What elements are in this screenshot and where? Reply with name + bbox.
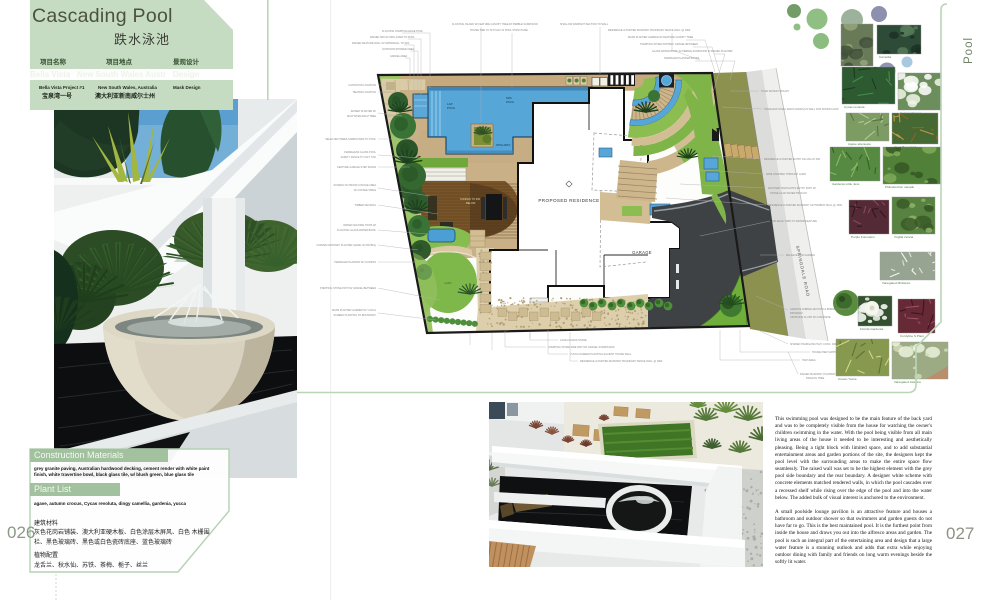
svg-text:RAISED SPA W/ SPILLOVER TO POO: RAISED SPA W/ SPILLOVER TO POOL	[370, 36, 415, 39]
svg-text:HIGH AREA: HIGH AREA	[802, 359, 816, 362]
svg-text:SHALLOW RAMPANT SECTION TO WAL: SHALLOW RAMPANT SECTION TO WALL	[560, 23, 609, 26]
svg-text:RESIDENCE & PAINTED MASONRY BO: RESIDENCE & PAINTED MASONRY BOUNDARY FEN…	[608, 29, 691, 32]
svg-text:STONE CLAD WATER TROUGH: STONE CLAD WATER TROUGH	[770, 192, 807, 195]
svg-text:TERRACED PLANTER BOXES: TERRACED PLANTER BOXES	[664, 57, 700, 60]
svg-text:POOL: POOL	[506, 100, 515, 104]
svg-text:RAISED FEATURE WALL W/ WATERFA: RAISED FEATURE WALL W/ WATERFALL TO SPA	[352, 42, 410, 45]
svg-text:SAFETY FENCE TO SUIT. STD: SAFETY FENCE TO SUIT. STD	[341, 156, 377, 159]
svg-text:FILTRATION LOCATION: FILTRATION LOCATION	[348, 84, 376, 87]
svg-text:OUTDOOR SHOWER AREA: OUTDOOR SHOWER AREA	[382, 48, 414, 51]
svg-text:FEATURE GAMALE STEP PALMS: FEATURE GAMALE STEP PALMS	[337, 166, 376, 169]
svg-text:STEPPING STONE PATH W/ GRAVEL: STEPPING STONE PATH W/ GRAVEL BETWEEN	[320, 287, 376, 290]
svg-text:Purple Formation: Purple Formation	[851, 235, 875, 239]
svg-text:FLOATING ISLAND W/ FEATURE CAN: FLOATING ISLAND W/ FEATURE CANOPY TREE W…	[452, 23, 538, 26]
svg-text:EXPOSED HIGHLIGHTS ENTRY PATH: EXPOSED HIGHLIGHTS ENTRY PATH W/	[768, 187, 816, 190]
svg-text:SELECTED TREES SURROUNDS TO PO: SELECTED TREES SURROUNDS TO POOL	[325, 138, 376, 141]
svg-text:LAWN: LAWN	[444, 281, 452, 285]
svg-text:Variegated Jasmine: Variegated Jasmine	[894, 380, 921, 384]
svg-text:MASS PLANTED GARDEN W/ FEATURE: MASS PLANTED GARDEN W/ FEATURE CANOPY TR…	[628, 36, 693, 39]
svg-text:BALANCE FOR GARDEN: BALANCE FOR GARDEN	[786, 254, 815, 257]
svg-text:Cycas revoluta: Cycas revoluta	[844, 105, 865, 109]
svg-text:FLOATING STEPPING EDGE POOL: FLOATING STEPPING EDGE POOL	[382, 30, 424, 33]
svg-text:GATE ACCESS STORE: GATE ACCESS STORE	[560, 339, 587, 342]
svg-text:CURVED MASONRY PLANTER (LEVEL: CURVED MASONRY PLANTER (LEVEL W/ PAVING)	[316, 244, 376, 247]
svg-text:MULTISTEM PALM TREE: MULTISTEM PALM TREE	[347, 115, 376, 118]
svg-text:YUCCA SCREEN PLANTING AGAINST: YUCCA SCREEN PLANTING AGAINST HOUSE WALL	[570, 353, 632, 356]
svg-text:DRAGON TREE: DRAGON TREE	[806, 377, 825, 380]
svg-text:RESIDENCE & PAINTED ENTRY FILL: RESIDENCE & PAINTED ENTRY FILLING AT 45D	[764, 158, 821, 161]
svg-text:TILED WATER TROUGH: TILED WATER TROUGH	[761, 90, 789, 93]
svg-text:GARAGE: GARAGE	[632, 250, 652, 255]
svg-text:SUNKEN OUTDOOR LOUNGE AREA: SUNKEN OUTDOOR LOUNGE AREA	[333, 184, 376, 187]
svg-text:FRAMELESS GLASS POOL: FRAMELESS GLASS POOL	[344, 151, 376, 154]
svg-text:BELOW: BELOW	[466, 201, 476, 205]
svg-text:RAISED PLANTER W/: RAISED PLANTER W/	[351, 110, 377, 113]
svg-text:Cream Yucca: Cream Yucca	[838, 377, 857, 381]
svg-text:W/ COFFEE TABLE: W/ COFFEE TABLE	[354, 189, 377, 192]
svg-text:FLOATING GLASS WATER BOWL: FLOATING GLASS WATER BOWL	[337, 229, 376, 232]
svg-text:TIMBER DECKING: TIMBER DECKING	[354, 204, 376, 207]
svg-text:Variegated Miniature: Variegated Miniature	[882, 281, 911, 285]
svg-text:Philodendron xanadu: Philodendron xanadu	[885, 185, 915, 189]
svg-text:MASS PLANTED GARDEN W/ YUCCA: MASS PLANTED GARDEN W/ YUCCA	[332, 309, 376, 312]
svg-text:SCREEN PLANTING TO BOUNDARY: SCREEN PLANTING TO BOUNDARY	[333, 314, 376, 317]
svg-text:SUNKEN TO 600: SUNKEN TO 600	[460, 197, 481, 201]
svg-text:POOL: POOL	[447, 106, 456, 110]
svg-text:SPILLWAY: SPILLWAY	[496, 143, 510, 147]
svg-text:BALANCE TURN TO WATER FEATURE: BALANCE TURN TO WATER FEATURE	[772, 220, 817, 223]
svg-text:Camellia: Camellia	[879, 55, 891, 59]
svg-text:Florida Gardenia: Florida Gardenia	[860, 327, 883, 331]
svg-text:RESIDENCE & PAINTED MASONRY BO: RESIDENCE & PAINTED MASONRY BOUNDARY FEN…	[580, 360, 663, 363]
svg-text:Virgilia incana: Virgilia incana	[894, 235, 913, 239]
svg-text:GRAVEL AREA: GRAVEL AREA	[390, 55, 408, 58]
svg-text:HEATER LOCATION: HEATER LOCATION	[353, 91, 376, 94]
svg-text:HOUSE TIER TO SIT HALF IN POOL: HOUSE TIER TO SIT HALF IN POOL STRUCTURE	[470, 29, 528, 32]
svg-text:TERRACED PLANTER W/ CUSHION: TERRACED PLANTER W/ CUSHION	[334, 261, 376, 264]
svg-text:STAINLESS STEEL DRAIN (DRAIN): STAINLESS STEEL DRAIN (DRAIN) IN WALL FO…	[764, 108, 839, 111]
svg-text:DRIVEWAY: DRIVEWAY	[790, 312, 803, 315]
svg-text:WIDE STEPPED THROUGH LAWN: WIDE STEPPED THROUGH LAWN	[766, 173, 806, 176]
svg-text:Pool: Pool	[963, 37, 975, 64]
svg-text:GLASS WATER BOWL W/ PEBBLE SUR: GLASS WATER BOWL W/ PEBBLE SURROUND IN R…	[652, 50, 733, 53]
svg-text:CROSSING FLUSH W/ CONCRETE: CROSSING FLUSH W/ CONCRETE	[790, 316, 831, 319]
svg-text:STEPPING STONE PATHWAY GRAVEL: STEPPING STONE PATHWAY GRAVEL BETWEEN	[640, 43, 698, 46]
svg-text:Cordyline S Plant: Cordyline S Plant	[900, 334, 924, 338]
svg-text:STEPPING STONE SIDE PATH W/ GR: STEPPING STONE SIDE PATH W/ GRAVEL SURRO…	[548, 346, 615, 349]
svg-text:PROPOSED RESIDENCE: PROPOSED RESIDENCE	[538, 198, 599, 203]
svg-text:WATER FEATURE TOWS W/: WATER FEATURE TOWS W/	[343, 224, 376, 227]
svg-text:Gardenia Little Jess: Gardenia Little Jess	[832, 182, 860, 186]
svg-text:GRANITE COBBLE SECTION & BORDE: GRANITE COBBLE SECTION & BORDER INSERT I…	[790, 308, 851, 311]
svg-text:RESIDENCE & PAINTED MASONRY LE: RESIDENCE & PAINTED MASONRY LETTERBOX WA…	[768, 204, 843, 207]
svg-text:Agave attenuata: Agave attenuata	[848, 142, 871, 146]
